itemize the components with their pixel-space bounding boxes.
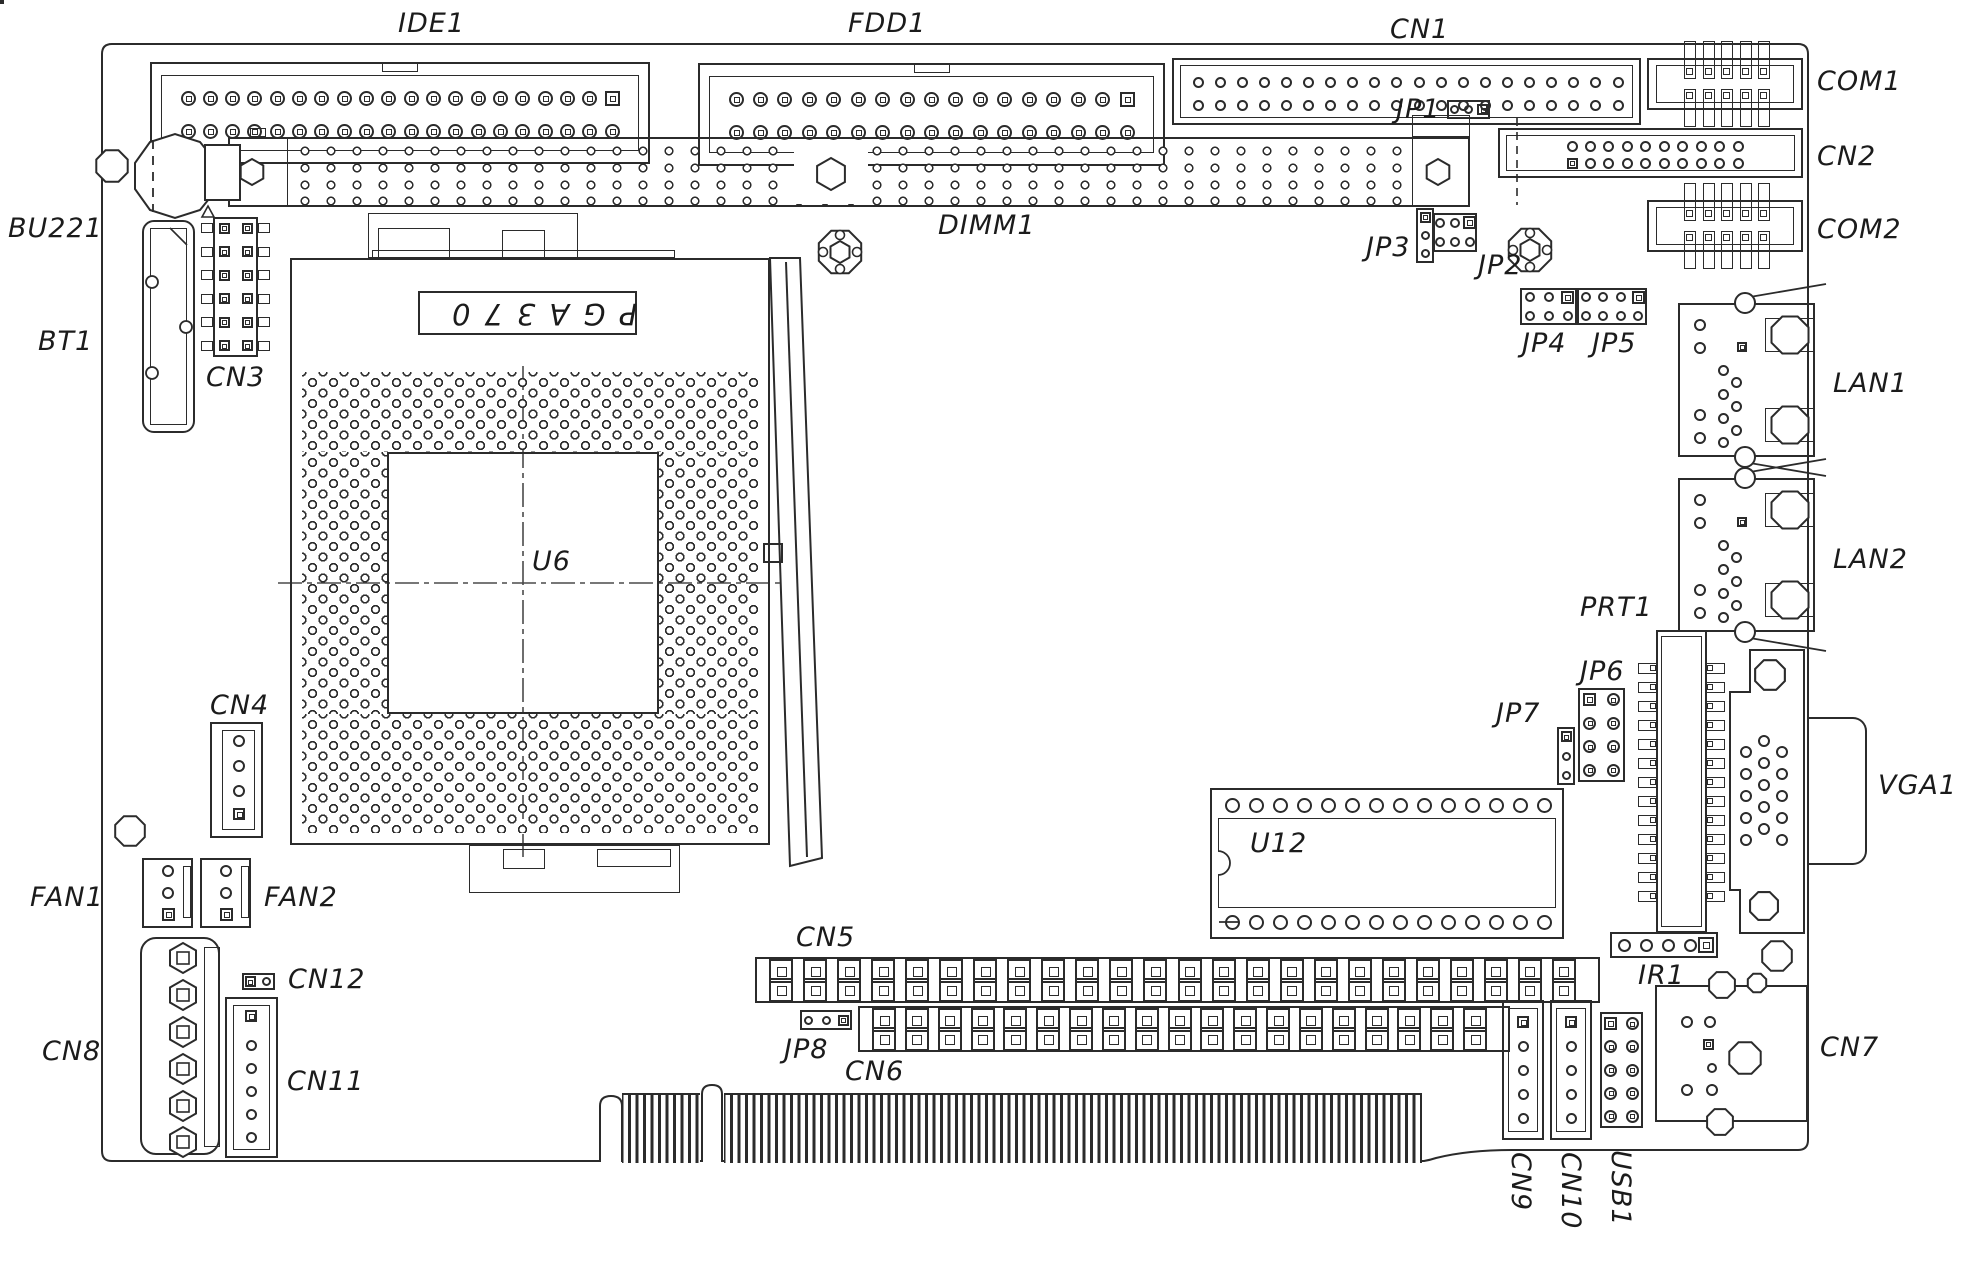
ide1-label: IDE1 <box>398 10 465 38</box>
cn8-connector-pin6-hex <box>170 1127 196 1157</box>
mount-flower-1-dot2 <box>819 248 828 257</box>
vga1-label: VGA1 <box>1878 772 1957 800</box>
jp1-label: JP1 <box>1396 96 1440 124</box>
cn6-label: CN6 <box>845 1058 904 1086</box>
lan2-port-post-b <box>1772 582 1809 619</box>
cn7-port-big-hole <box>1729 1042 1760 1073</box>
lan1-port-tab-b <box>1735 447 1755 467</box>
mount-flower-2-dot3 <box>1526 263 1535 272</box>
lan2-port-tab-t <box>1735 468 1755 488</box>
bt1-label: BT1 <box>38 328 93 356</box>
bu221-clip <box>205 145 240 200</box>
mount-flower-1-dot4 <box>836 231 845 240</box>
mount-hole-3 <box>1755 660 1785 690</box>
cn8-connector-pin2-hex <box>170 980 196 1010</box>
dimm1-socket-latch-hex-l <box>241 159 264 185</box>
dimm1-socket-key-hex <box>817 158 845 190</box>
lan2-port-tab-b <box>1735 622 1755 642</box>
jp6-label: JP6 <box>1580 658 1624 686</box>
board-layout-diagram: PGA370 IDE1FDD1CN1COM1BU221CN2DIMM1JP1JP… <box>0 0 1977 1264</box>
cn8-connector-pin4-hex <box>170 1054 196 1084</box>
jp7-label: JP7 <box>1496 700 1540 728</box>
fan1-label: FAN1 <box>30 884 104 912</box>
mount-hole-6 <box>1748 974 1766 992</box>
cn7-label: CN7 <box>1820 1034 1879 1062</box>
mount-flower-2-dot1 <box>1543 246 1552 255</box>
mount-flower-1-center <box>831 241 850 263</box>
mount-flower-1-dot3 <box>836 265 845 274</box>
cn10-label: CN10 <box>1556 1152 1584 1229</box>
fan2-label: FAN2 <box>264 884 338 912</box>
cn8-connector-pin1-hex <box>170 943 196 973</box>
mount-flower-2-center <box>1521 239 1540 261</box>
lan1-label: LAN1 <box>1833 370 1908 398</box>
mount-hole-2 <box>115 816 145 846</box>
bt1-holder-hole2 <box>180 321 192 333</box>
com1-label: COM1 <box>1817 68 1902 96</box>
u12-chip-notch <box>1218 851 1230 875</box>
jp8-label: JP8 <box>784 1036 828 1064</box>
u6-label: U6 <box>532 548 571 576</box>
mount-hole-5 <box>1762 941 1792 971</box>
dimm1-socket-latch-hex-r <box>1427 159 1450 185</box>
cn3-label: CN3 <box>206 364 265 392</box>
cn2-label: CN2 <box>1817 143 1876 171</box>
pga370-text: PGA370 <box>438 299 637 328</box>
lan1-port-post-b <box>1772 407 1809 444</box>
jp2-label: JP2 <box>1478 252 1522 280</box>
bt1-holder-hole3 <box>146 367 158 379</box>
lan1-port-tab-t <box>1735 293 1755 313</box>
mount-flower-1-dot1 <box>853 248 862 257</box>
cn7-port-post-b <box>1707 1109 1733 1135</box>
cn5-label: CN5 <box>796 924 855 952</box>
bu221-label: BU221 <box>8 215 103 243</box>
mount-hole-1 <box>96 150 127 181</box>
usb1-label: USB1 <box>1606 1150 1634 1227</box>
cn3-header-pin1-arrow <box>202 206 214 217</box>
prt1-label: PRT1 <box>1580 594 1653 622</box>
cn8-label: CN8 <box>42 1038 101 1066</box>
jp5-label: JP5 <box>1592 330 1636 358</box>
lan2-port-post-t <box>1772 492 1809 529</box>
bt1-holder-hole1 <box>146 276 158 288</box>
jp3-label: JP3 <box>1366 234 1410 262</box>
u12-label: U12 <box>1250 830 1307 858</box>
lan1-port-post-t <box>1772 317 1809 354</box>
cn12-label: CN12 <box>288 966 365 994</box>
cn9-label: CN9 <box>1506 1152 1534 1211</box>
cn1-label: CN1 <box>1390 16 1449 44</box>
com2-label: COM2 <box>1817 216 1902 244</box>
mount-flower-2-dot4 <box>1526 229 1535 238</box>
cn8-connector-pin5-hex <box>170 1091 196 1121</box>
fdd1-label: FDD1 <box>848 10 926 38</box>
lan2-label: LAN2 <box>1833 546 1908 574</box>
jp4-label: JP4 <box>1522 330 1566 358</box>
cn4-label: CN4 <box>210 692 269 720</box>
cn8-connector-pin3-hex <box>170 1017 196 1047</box>
cn7-port-post-t <box>1709 972 1735 998</box>
bt1-holder-chamfer <box>170 228 187 245</box>
mount-hole-4 <box>1750 892 1778 920</box>
dimm1-label: DIMM1 <box>938 212 1036 240</box>
ir1-label: IR1 <box>1638 962 1685 990</box>
cn11-label: CN11 <box>287 1068 364 1096</box>
